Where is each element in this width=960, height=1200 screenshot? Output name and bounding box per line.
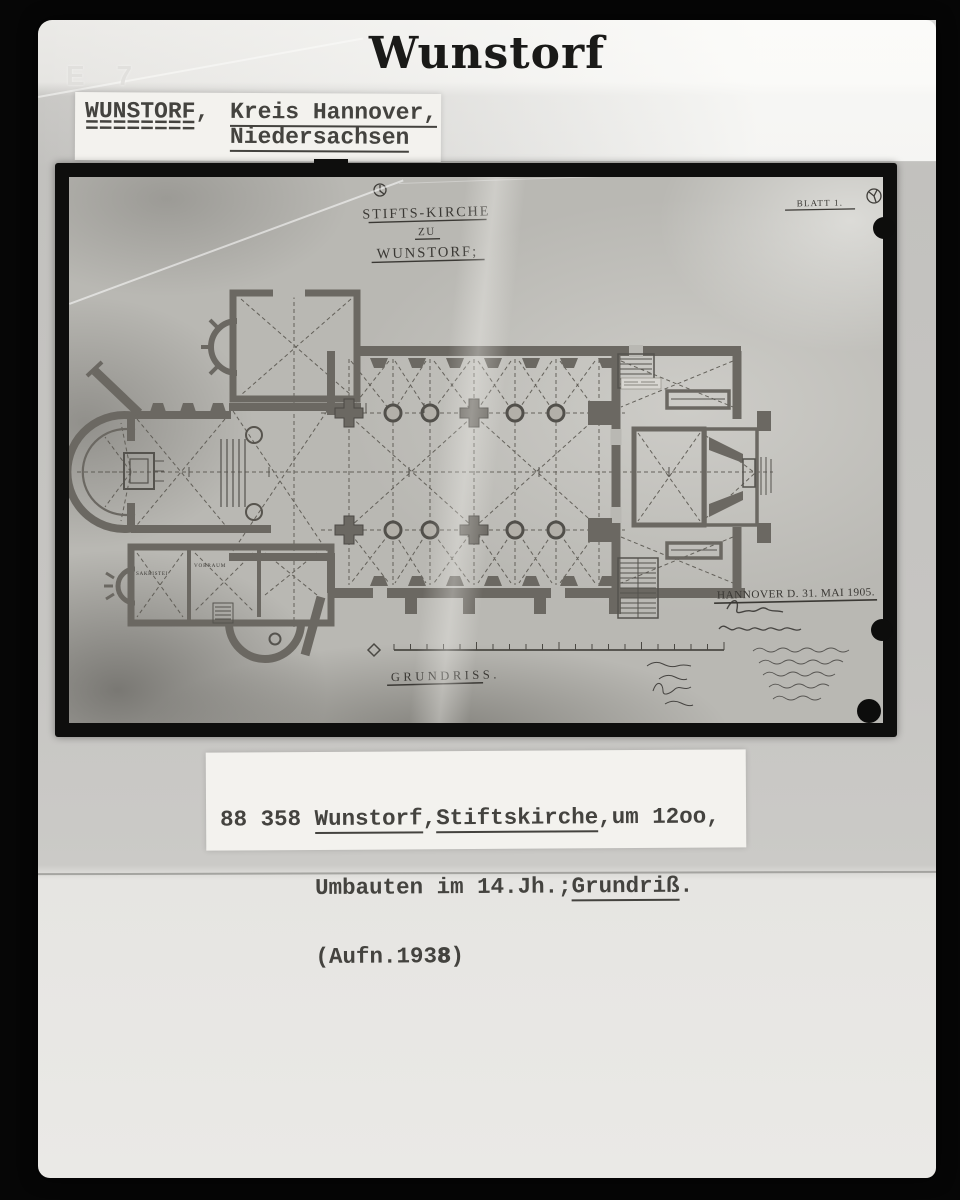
shelf-mark-stamp: E 7 (66, 60, 144, 92)
caption-dating: ,um 12oo, (598, 804, 720, 831)
location-label: WUNSTORF, ======== Kreis Hannover, Niede… (75, 92, 441, 162)
frame-notch (314, 159, 348, 173)
signature-handwriting (647, 601, 849, 706)
caption-town: Wunstorf (315, 805, 423, 834)
place-date-inscription: HANNOVER D. 31. MAI 1905. (717, 586, 875, 601)
caption-label: 88 358 Wunstorf,Stiftskirche,um 12oo, Um… (206, 749, 747, 850)
small-plan-label (621, 378, 661, 389)
caption-photo-year: (Aufn.193 (315, 943, 437, 970)
caption-separator: , (423, 805, 437, 831)
page-title: Wunstorf (38, 28, 936, 79)
caption-period: . (680, 873, 694, 899)
room-label-sacristy: SAKRISTEI (136, 571, 168, 577)
caption-drawing-type: Grundriß (571, 873, 679, 902)
caption-close-paren: ) (450, 943, 464, 969)
corner-blob (871, 619, 893, 641)
caption-photo-year-bold-digit: 8 (437, 943, 451, 969)
card-strip-edge (428, 161, 936, 162)
sheet-number: BLATT 1. (797, 198, 844, 209)
caption-alterations: Umbauten im 14.Jh.; (315, 873, 572, 901)
inventory-number: 88 358 (220, 806, 315, 833)
plan-title-line2: ZU (418, 226, 436, 238)
caption-building: Stiftskirche (436, 804, 598, 833)
caption-line-2: Umbauten im 14.Jh.;Grundriß. (220, 874, 746, 900)
location-state: Niedersachsen (230, 124, 410, 153)
photo-frame: STIFTS-KIRCHE ZU WUNSTORF; BLATT 1. (55, 163, 897, 737)
caption-line-3: (Aufn.1938) (221, 943, 747, 969)
archive-card: Wunstorf E 7 WUNSTORF, ======== Kreis Ha… (38, 20, 936, 1178)
corner-blob (873, 217, 895, 239)
floor-plan-photo: STIFTS-KIRCHE ZU WUNSTORF; BLATT 1. (69, 177, 883, 723)
caption-line-1: 88 358 Wunstorf,Stiftskirche,um 12oo, (220, 805, 746, 831)
location-town-underline: ======== (85, 113, 196, 140)
pencil-note-handwriting (647, 662, 693, 705)
room-label-vestibule: VORRAUM (194, 563, 226, 569)
corner-blob (857, 699, 881, 723)
scanned-archive-sheet: Wunstorf E 7 WUNSTORF, ======== Kreis Ha… (0, 0, 960, 1200)
